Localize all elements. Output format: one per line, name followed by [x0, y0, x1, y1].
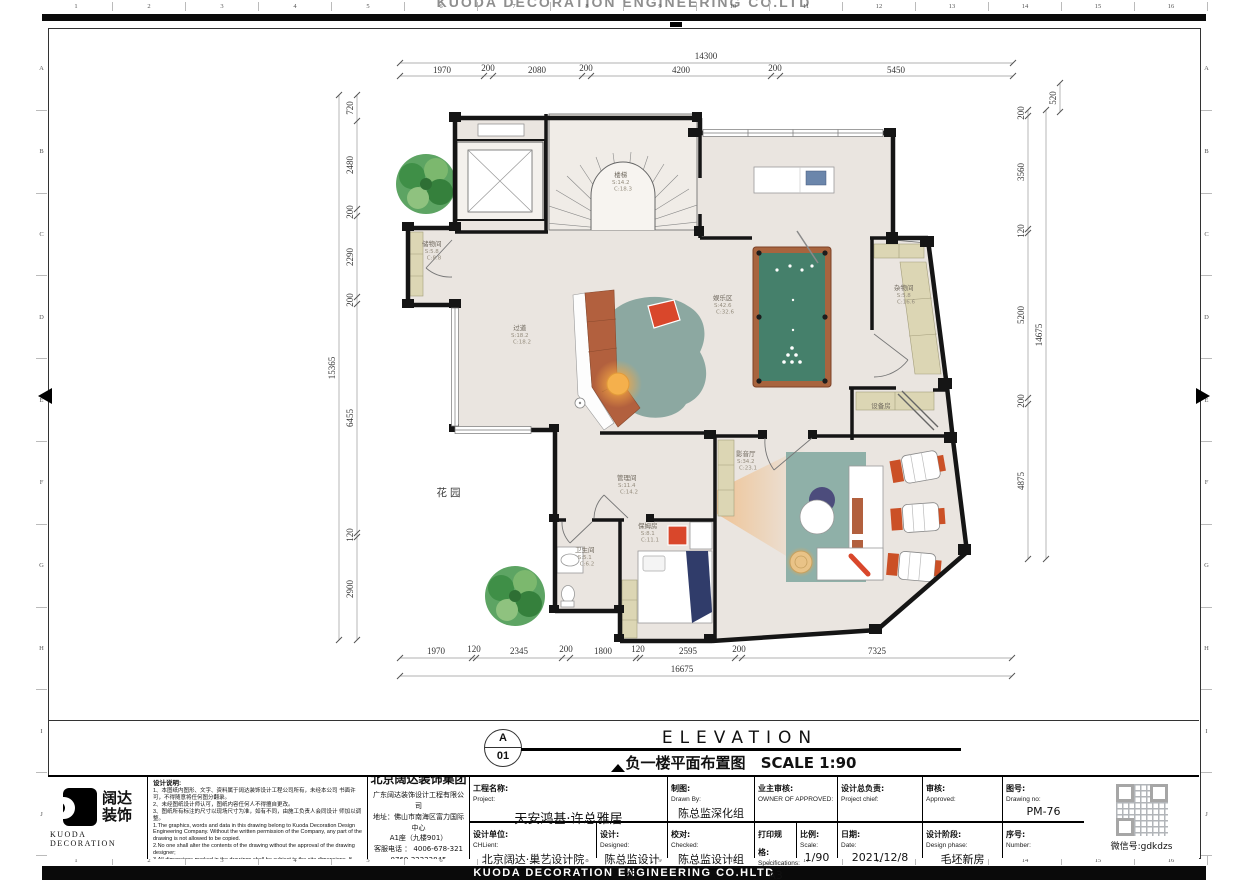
- svg-text:120: 120: [345, 528, 355, 542]
- drawing-title-en: ELEVATION: [540, 728, 940, 748]
- field-scale: 比例: Scale: 1/90: [797, 823, 838, 858]
- billiard-table: [753, 231, 831, 387]
- svg-text:3560: 3560: [1016, 163, 1026, 182]
- dim-bottom-total: 16675: [671, 664, 694, 674]
- field-checked: 校对: Checked: 陈总监设计组: [668, 823, 755, 858]
- desk-chair: [668, 526, 687, 545]
- svg-text:200: 200: [481, 63, 495, 73]
- theater-round-table: [800, 500, 834, 534]
- field-number: 序号: Number:: [1003, 823, 1084, 858]
- svg-text:2900: 2900: [345, 580, 355, 599]
- svg-text:120: 120: [1016, 224, 1026, 238]
- sink: [561, 554, 579, 566]
- svg-text:200: 200: [345, 293, 355, 307]
- title-scale-text: SCALE 1:90: [761, 754, 857, 772]
- tree-top-left-icon: [396, 154, 456, 214]
- left-elevation-arrow-icon: [38, 388, 52, 404]
- title-underline: [521, 748, 961, 751]
- detail-letter: A: [485, 730, 521, 748]
- wechat-qr: 微信号:gdkdzs: [1084, 777, 1199, 859]
- svg-text:2480: 2480: [345, 156, 355, 175]
- field-design-phase: 设计阶段: Design phase: 毛坯新房: [923, 823, 1003, 858]
- note-cn-1: 1、本图纸内图形、文字、资料属于阔达装饰设计工程公司所有，未经本公司 书面许可，…: [153, 788, 362, 802]
- field-specifications: 打印规格: Specifications: A3: [755, 823, 797, 858]
- svg-text:120: 120: [467, 644, 481, 654]
- note-en-2: 2.No one shall alter the contents of the…: [153, 843, 362, 857]
- field-date: 日期: Date: 2021/12/8: [838, 823, 923, 858]
- svg-text:200: 200: [768, 63, 782, 73]
- logo-cn-2: 装饰: [102, 807, 132, 824]
- company-tel-1: 客服电话 ： 4006-678-321: [370, 844, 467, 855]
- drawing-title-cn: 负一楼平面布置图 SCALE 1:90: [521, 752, 961, 773]
- svg-text:1970: 1970: [433, 65, 452, 75]
- toilet: [562, 586, 575, 603]
- company-tel-2: 0769-22222845: [370, 855, 467, 859]
- detail-number: 01: [485, 748, 521, 764]
- svg-text:2080: 2080: [528, 65, 547, 75]
- svg-text:200: 200: [579, 63, 593, 73]
- svg-text:200: 200: [1016, 106, 1026, 120]
- svg-text:200: 200: [345, 205, 355, 219]
- note-cn-3: 3、图纸所有标注的尺寸以现场尺寸为准，如有不同，由施工负责人会同设计 师加以调整…: [153, 809, 362, 823]
- company-info: 北京阔达装饰集团 广东阔达装饰设计工程有限公司 地址：佛山市南海区富力国际中心 …: [368, 777, 470, 859]
- svg-text:4200: 4200: [672, 65, 691, 75]
- kuoda-logo-icon: [63, 788, 97, 826]
- note-cn-2: 2、未经图纸设计师认可，图纸内容任何人不得擅自更改。: [153, 802, 362, 809]
- svg-text:2595: 2595: [679, 646, 698, 656]
- wood-stool: [790, 551, 812, 573]
- company-sub-name: 广东阔达装饰设计工程有限公司: [370, 790, 467, 812]
- svg-text:7325: 7325: [868, 646, 887, 656]
- tree-bottom-left-icon: [485, 566, 545, 626]
- svg-text:200: 200: [559, 644, 573, 654]
- svg-text:1800: 1800: [594, 646, 613, 656]
- svg-text:6455: 6455: [345, 409, 355, 428]
- title-cn-text: 负一楼平面布置图: [625, 754, 745, 772]
- field-designed: 设计: Designed: 陈总监设计组: [597, 823, 668, 858]
- dim-top-total: 14300: [695, 51, 718, 61]
- dim-right-top: 520: [1048, 91, 1058, 105]
- company-address-1: 地址：佛山市南海区富力国际中心: [370, 812, 467, 834]
- qr-code-icon: [1116, 784, 1168, 836]
- room-label-equipment: 设备房: [871, 401, 891, 410]
- svg-text:2345: 2345: [510, 646, 529, 656]
- svg-text:200: 200: [732, 644, 746, 654]
- desk: [690, 522, 712, 549]
- detail-marker: A 01: [484, 729, 522, 767]
- company-group-name: 北京阔达装饰集团: [370, 777, 467, 787]
- note-en-1: 1.The graphics, words and data in this d…: [153, 823, 362, 844]
- field-drawing-no: 图号: Drawing no: PM-76: [1003, 777, 1084, 821]
- note-en-3: 3.All dimensions marked in the drawings …: [153, 857, 362, 859]
- svg-text:200: 200: [1016, 394, 1026, 408]
- right-elevation-arrow-icon: [1196, 388, 1210, 404]
- field-owner-approved: 业主审核: OWNER OF APPROVED:: [755, 777, 838, 821]
- drawing-sheet: { "banner": { "top": "KUODA DECORATION E…: [0, 0, 1248, 885]
- console-table: [754, 167, 834, 193]
- logo-cn-1: 阔达: [102, 790, 132, 807]
- svg-text:720: 720: [345, 101, 355, 115]
- company-logo: 阔达 装饰 KUODA DECORATION: [48, 777, 148, 859]
- svg-text:4875: 4875: [1016, 472, 1026, 491]
- field-approved: 审核: Approved:: [923, 777, 1003, 821]
- company-address-2: A1座（九楼901）: [370, 833, 467, 844]
- svg-text:5450: 5450: [887, 65, 906, 75]
- dim-left-total: 15365: [327, 356, 337, 379]
- dim-right-total: 14675: [1034, 323, 1044, 346]
- field-drawn-by: 制图: Drawn By: 陈总监深化组: [668, 777, 755, 821]
- fold-mark-bottom: [611, 764, 625, 772]
- logo-en: KUODA DECORATION: [50, 830, 145, 848]
- recliner-chairs: [886, 449, 947, 583]
- round-side-table: [607, 373, 629, 395]
- field-project: 工程名称: Project: 天安鸿基·许总雅居: [470, 777, 668, 821]
- title-block-fields: 工程名称: Project: 天安鸿基·许总雅居 制图: Drawn By: 陈…: [470, 777, 1084, 859]
- svg-text:2290: 2290: [345, 248, 355, 267]
- notes-title: 设计说明:: [153, 780, 362, 788]
- svg-text:120: 120: [631, 644, 645, 654]
- garden-label: 花园: [437, 486, 464, 499]
- design-notes: 设计说明: 1、本图纸内图形、文字、资料属于阔达装饰设计工程公司所有，未经本公司…: [148, 777, 368, 859]
- svg-text:1970: 1970: [427, 646, 446, 656]
- title-block: 阔达 装饰 KUODA DECORATION 设计说明: 1、本图纸内图形、文字…: [48, 775, 1199, 859]
- field-design-unit: 设计单位: CHLient: 北京阔达·巢艺设计院: [470, 823, 597, 858]
- wechat-id: 微信号:gdkdzs: [1111, 839, 1173, 852]
- svg-text:5200: 5200: [1016, 306, 1026, 325]
- field-project-chief: 设计总负责: Project chief:: [838, 777, 923, 821]
